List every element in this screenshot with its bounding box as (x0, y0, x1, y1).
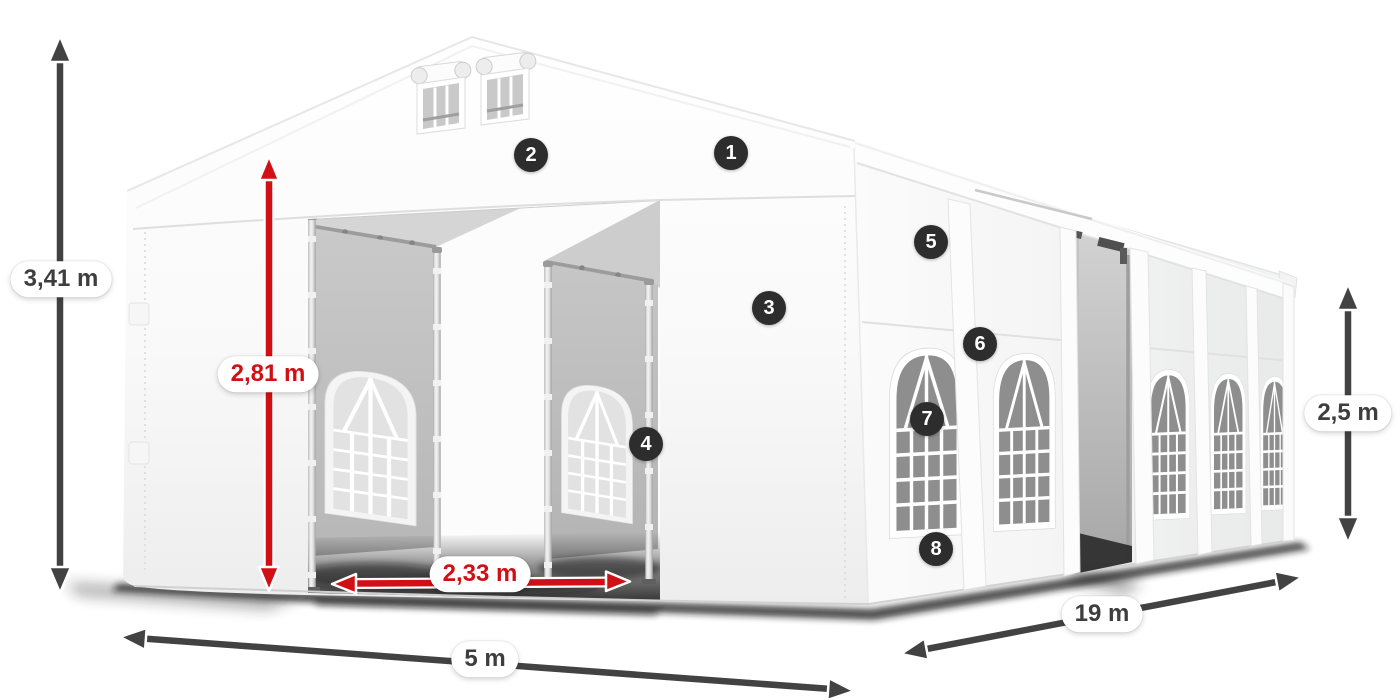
roof-vent-right (475, 51, 537, 125)
dimension-side-height: 2,5 m (1304, 395, 1391, 431)
dimension-total-height: 3,41 m (11, 261, 112, 297)
interior-window-right (561, 380, 632, 523)
entrance-interior (294, 195, 670, 610)
hotspot-1-roof-tarp[interactable]: 1 (714, 136, 748, 170)
hotspot-3-front-wall[interactable]: 3 (752, 291, 786, 325)
dimension-width: 5 m (451, 641, 518, 677)
hotspot-8-side-lower-panel[interactable]: 8 (919, 532, 953, 566)
interior-window-left (325, 366, 416, 526)
roof-vent-left (410, 60, 472, 134)
hotspot-5-side-upper-panel[interactable]: 5 (914, 225, 948, 259)
hotspot-6-side-strap[interactable]: 6 (963, 327, 997, 361)
dimension-entrance-height: 2,81 m (218, 356, 319, 392)
hotspot-4-entrance-frame[interactable]: 4 (629, 427, 663, 461)
tent-dimension-diagram: 3,41 m 2,81 m 2,33 m 5 m 19 m 2,5 m 1 2 … (0, 0, 1400, 700)
hotspot-2-front-gable[interactable]: 2 (514, 138, 548, 172)
side-wall (855, 141, 1294, 604)
hotspot-7-side-window[interactable]: 7 (910, 402, 944, 436)
arrow-total-height (49, 36, 71, 593)
dimension-length: 19 m (1062, 596, 1143, 632)
side-window-3 (1147, 369, 1190, 521)
dimension-entrance-width: 2,33 m (430, 556, 531, 592)
side-window-2 (993, 352, 1055, 532)
side-window-1 (890, 346, 964, 538)
side-window-4 (1211, 373, 1246, 515)
tent-illustration (0, 0, 1400, 700)
side-doorway-open (1071, 230, 1132, 574)
